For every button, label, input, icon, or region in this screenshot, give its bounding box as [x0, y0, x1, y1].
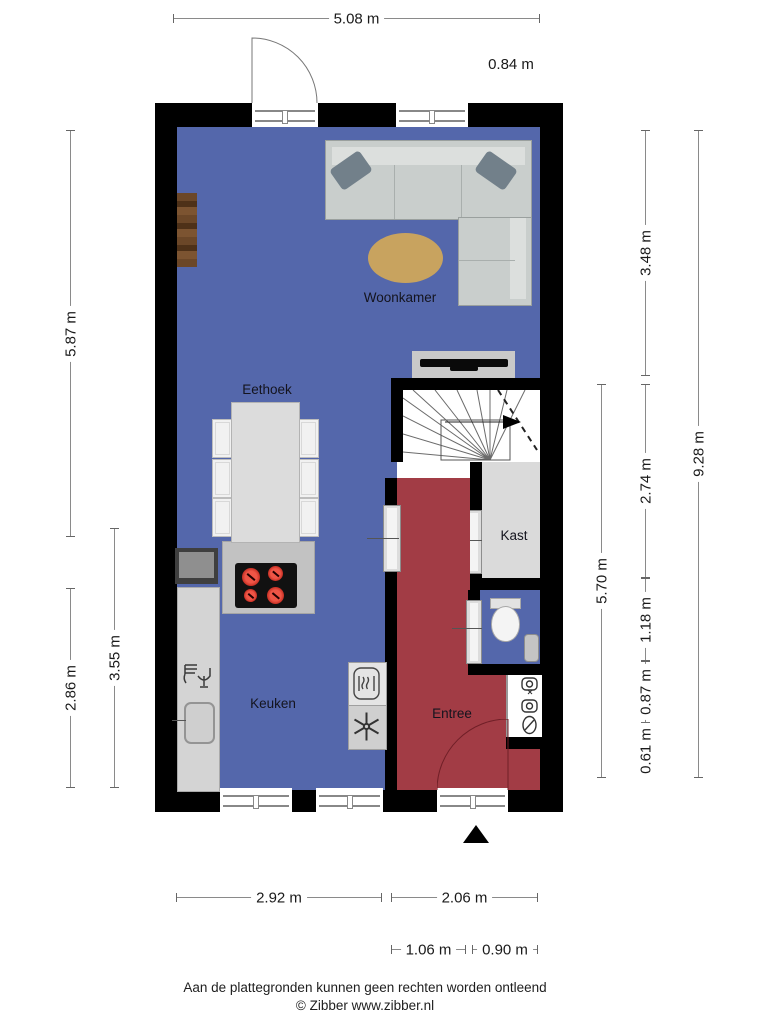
dim-label: 2.86 m [62, 660, 79, 716]
dining-table [231, 402, 300, 543]
sideboard [177, 193, 197, 267]
stair-landing [397, 462, 472, 478]
dim-right-toilet: 1.18 m [637, 578, 654, 661]
chair [298, 459, 319, 498]
bottom-window-right [316, 788, 383, 812]
dim-label: 2.74 m [637, 453, 654, 509]
dim-label: 0.87 m [637, 664, 654, 720]
chair [212, 419, 233, 458]
burner-icon [242, 568, 260, 586]
dim-right-meterkast: 0.87 m [637, 661, 654, 723]
room-label-entree: Entree [412, 706, 492, 721]
fridge-top [179, 552, 214, 578]
cooktop [235, 563, 297, 608]
dim-label: 1.06 m [401, 941, 457, 958]
washer [348, 705, 387, 750]
room-label-kast: Kast [484, 528, 544, 543]
window-glass [319, 795, 380, 807]
room-label-keuken: Keuken [233, 696, 313, 711]
toilet-icon [491, 606, 520, 642]
front-door-swing-arc [437, 719, 509, 791]
dim-right-upper: 3.48 m [637, 130, 654, 376]
dim-right-small: 0.61 m [637, 723, 654, 778]
dim-top-width: 5.08 m [173, 10, 540, 27]
toilet-door [466, 600, 482, 664]
window-glass [223, 795, 289, 807]
sink-icon [184, 702, 215, 744]
bottom-window-left [220, 788, 292, 812]
sofa-seam [459, 260, 515, 261]
meter-symbols-icon [508, 675, 542, 737]
window-glass [399, 110, 465, 122]
room-label-woonkamer: Woonkamer [355, 290, 445, 305]
fridge [175, 548, 218, 584]
copyright-text: © Zibber www.zibber.nl [0, 998, 730, 1013]
fan-icon [349, 706, 384, 747]
dim-label: 0.61 m [637, 723, 654, 779]
dim-left-lower: 2.86 m [62, 588, 79, 788]
sofa-seam [461, 165, 462, 219]
chair [212, 498, 233, 537]
burner-icon [267, 587, 284, 604]
chair [212, 459, 233, 498]
dim-bottom-kitchen: 2.92 m [176, 889, 382, 906]
dim-label: 5.70 m [593, 553, 610, 609]
rug [368, 233, 443, 283]
chair [298, 419, 319, 458]
burner-icon [268, 566, 283, 581]
dim-label: 3.55 m [106, 630, 123, 686]
top-window [396, 103, 468, 127]
dim-bottom-entree: 2.06 m [391, 889, 538, 906]
dim-label: 2.92 m [251, 889, 307, 906]
toilet-bottom-wall [468, 664, 540, 675]
sofa-seam [394, 165, 395, 219]
dim-label: 5.87 m [62, 306, 79, 362]
stairs-treads [403, 390, 540, 462]
chair [298, 498, 319, 537]
door-sill [255, 110, 315, 122]
sofa-backrest [510, 218, 526, 299]
faucet-tick [172, 720, 186, 721]
front-door-opening [437, 788, 508, 812]
dim-right-total: 9.28 m [690, 130, 707, 778]
dim-label: 1.18 m [637, 592, 654, 648]
entrance-arrow-icon [463, 825, 489, 843]
top-door-opening [252, 103, 318, 127]
dim-left-kitchen: 3.55 m [106, 528, 123, 788]
door-sill [440, 795, 505, 807]
meter-cupboard [506, 675, 542, 737]
dim-label: 0.90 m [477, 941, 533, 958]
dim-label: 3.48 m [637, 225, 654, 281]
kast-floor [482, 462, 540, 578]
dishwasher-icon [181, 660, 215, 694]
toilet-sink-icon [524, 634, 539, 662]
dim-label: 2.06 m [437, 889, 493, 906]
room-label-eethoek: Eethoek [227, 382, 307, 397]
floorplan-page: 5.08 m 0.84 m 5.87 m 3.55 m 2.86 m 3.48 … [0, 0, 768, 1024]
disclaimer-text: Aan de plattegronden kunnen geen rechten… [0, 980, 730, 995]
dim-label: 5.08 m [329, 10, 385, 27]
dim-bottom-door: 1.06 m [391, 941, 466, 958]
toilet-door-tick [452, 628, 482, 629]
dim-bottom-right: 0.90 m [472, 941, 538, 958]
sofa-chaise [458, 217, 532, 306]
tv-stand [450, 366, 478, 371]
keuken-door-tick [367, 538, 399, 539]
door-swing-arc [251, 37, 319, 104]
oven [348, 662, 387, 707]
dim-top-door-label: 0.84 m [476, 56, 546, 73]
dim-right-stairs: 2.74 m [637, 384, 654, 578]
burner-icon [244, 589, 257, 602]
dim-right-entree: 5.70 m [593, 384, 610, 778]
oven-icon [349, 663, 384, 704]
meter-cupboard-wall [506, 737, 540, 749]
kast-bottom-wall [470, 578, 540, 590]
dim-label: 9.28 m [690, 426, 707, 482]
staircase [403, 390, 540, 462]
dim-left-living: 5.87 m [62, 130, 79, 537]
